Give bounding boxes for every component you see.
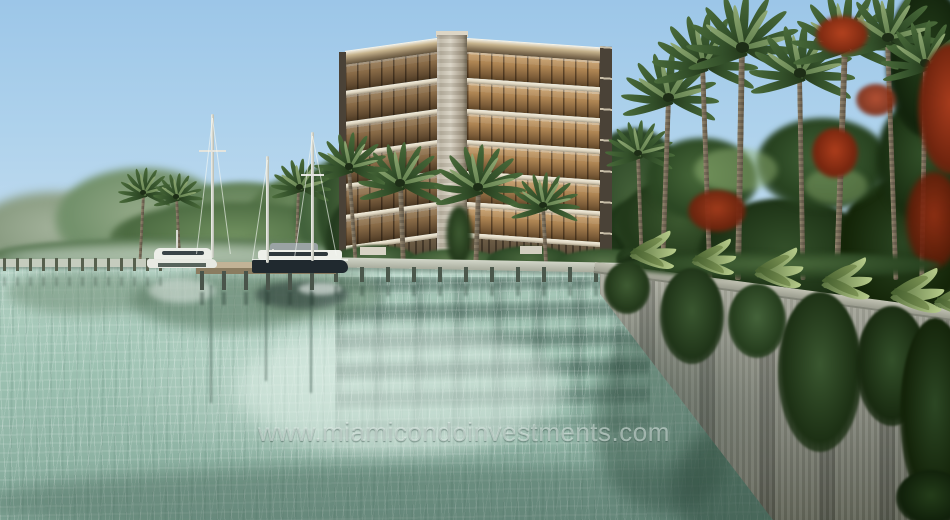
foliage-blob <box>728 284 786 358</box>
watermark: www.miamicondoinvestments.com <box>258 417 698 448</box>
foliage-blob <box>660 268 724 364</box>
foliage-blob <box>604 262 650 314</box>
foliage-blob <box>778 292 862 452</box>
scene: www.miamicondoinvestments.com <box>0 0 950 520</box>
foliage-blob <box>896 470 950 520</box>
